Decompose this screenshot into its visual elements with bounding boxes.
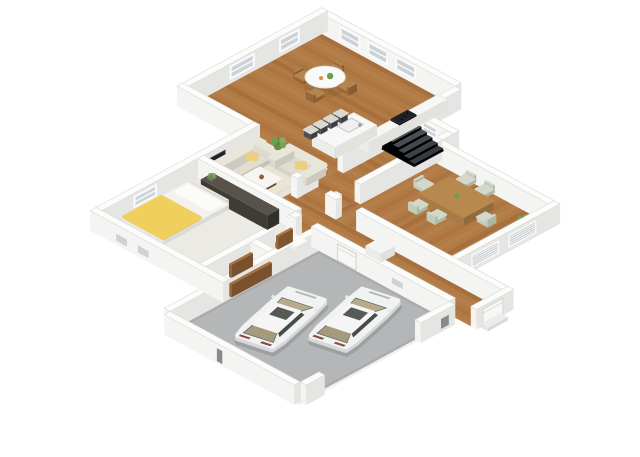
floorplan-3d-render	[0, 0, 640, 457]
floorplan-image	[0, 0, 640, 457]
wall-hall-top-a	[291, 172, 303, 199]
